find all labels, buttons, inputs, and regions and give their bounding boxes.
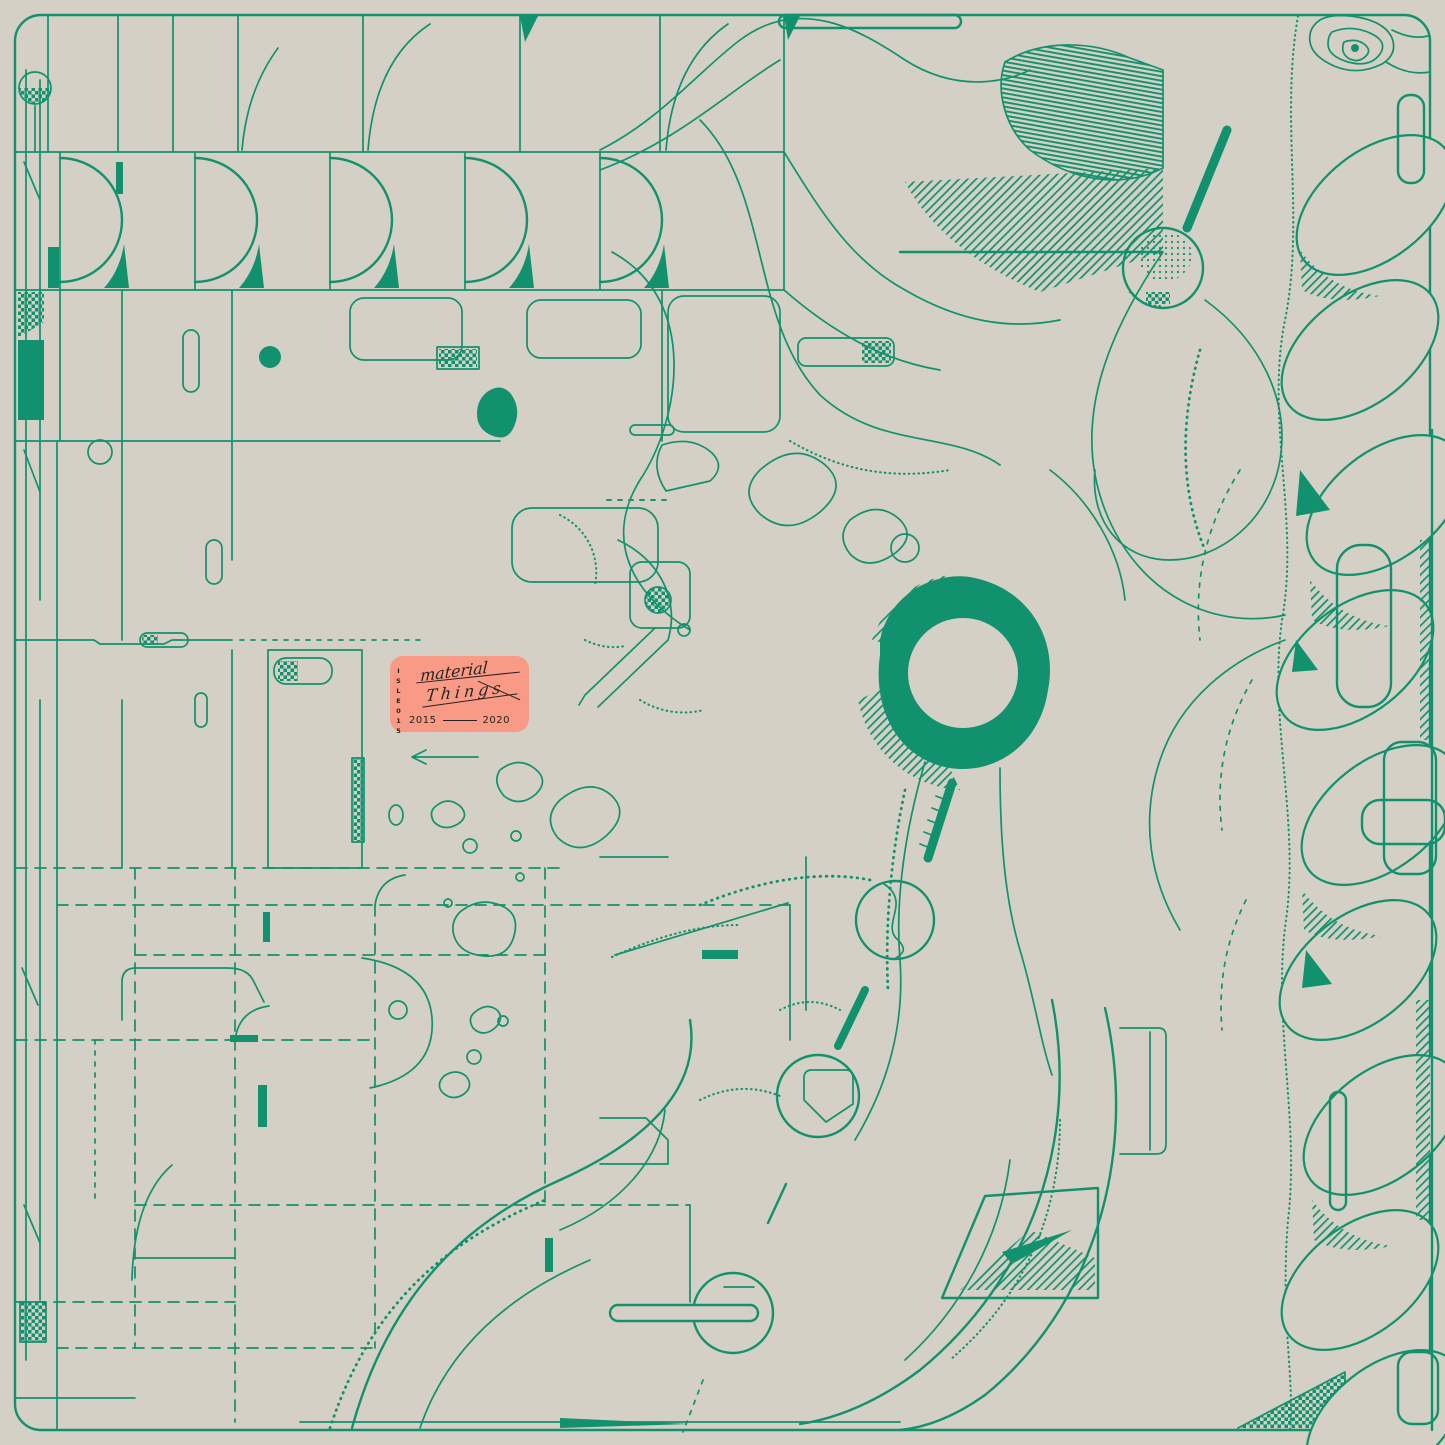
bracket-shape xyxy=(1120,1028,1166,1154)
small-ring xyxy=(389,1001,407,1019)
grid-top-left xyxy=(16,15,894,492)
sticker-label: ISLE015 material Things 2015 2020 xyxy=(390,656,529,732)
years-dash-line xyxy=(443,720,477,722)
mountain-trapezoid xyxy=(942,1188,1098,1298)
thin-slash xyxy=(768,1184,786,1223)
year-end: 2020 xyxy=(483,715,510,726)
thick-diagonal-bar-top xyxy=(1187,130,1227,228)
grid-bottom-left xyxy=(16,868,1160,1430)
top-capsule xyxy=(779,15,961,28)
comb-bar xyxy=(920,783,952,858)
year-start: 2015 xyxy=(409,715,436,726)
album-cover: ISLE015 material Things 2015 2020 xyxy=(0,0,1445,1445)
sticker-years: 2015 2020 xyxy=(390,715,529,726)
grid-middle-left xyxy=(16,440,670,868)
braided-column xyxy=(1251,16,1445,1445)
album-artwork-illustration xyxy=(0,0,1445,1445)
sticker-catalog-number: ISLE015 xyxy=(395,667,402,737)
clock-circle xyxy=(777,1055,859,1137)
ink-splat xyxy=(477,387,517,437)
moon-stipple-circle xyxy=(1123,228,1203,308)
yin-circle xyxy=(856,881,934,959)
sticker-script-title: material Things xyxy=(412,660,524,706)
frame-border xyxy=(15,15,1430,1430)
central-ring xyxy=(858,575,1050,790)
crosshatch-square xyxy=(20,1302,46,1342)
rod-circle xyxy=(610,1273,773,1353)
amoeba-blobs xyxy=(362,762,620,1097)
thick-diagonal-bar-mid xyxy=(838,990,865,1046)
left-arrow xyxy=(412,750,478,764)
topo-contours xyxy=(1310,16,1430,73)
